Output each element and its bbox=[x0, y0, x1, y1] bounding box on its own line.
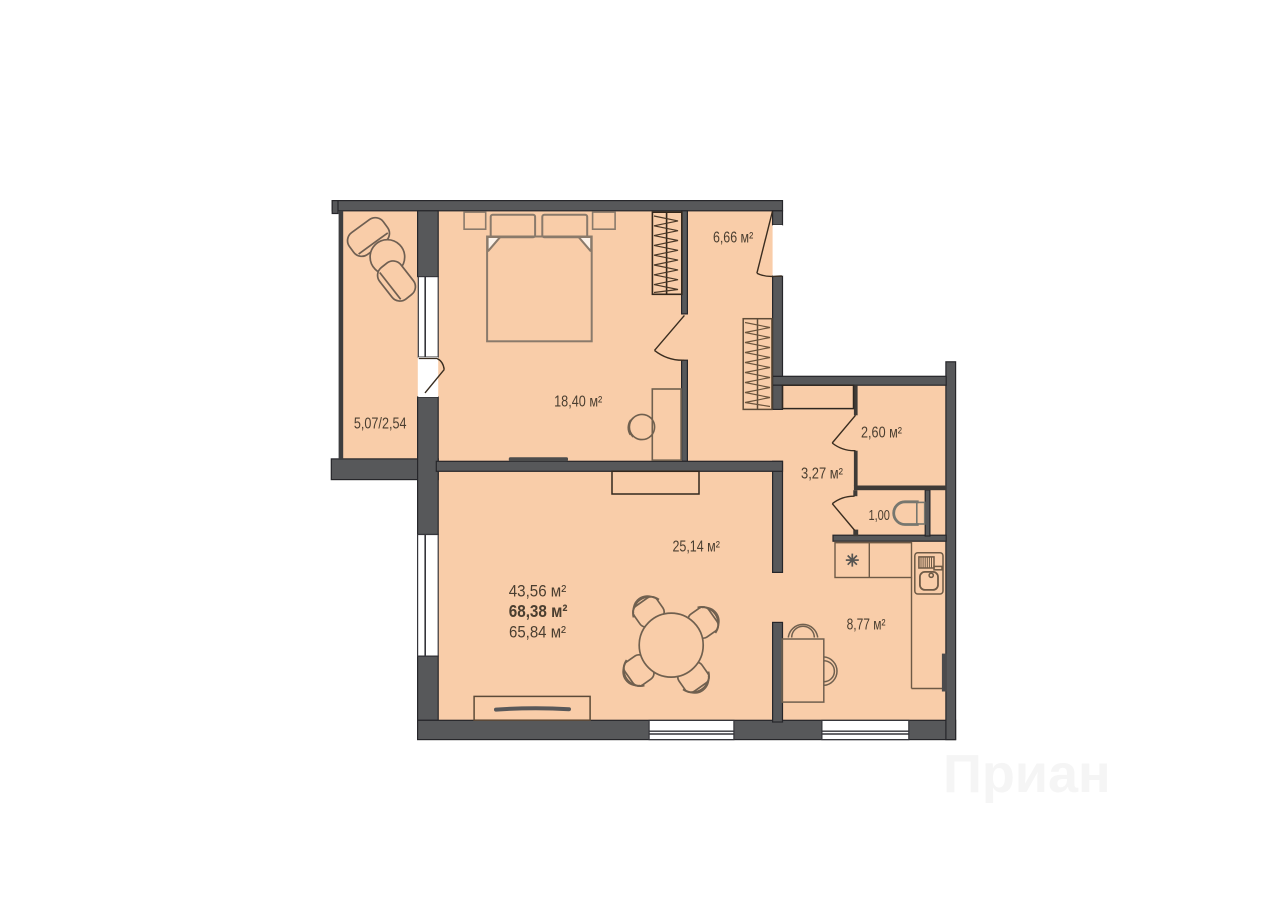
svg-text:43,56 м²: 43,56 м² bbox=[509, 582, 567, 600]
svg-text:68,38 м²: 68,38 м² bbox=[509, 601, 568, 621]
svg-text:2,60 м²: 2,60 м² bbox=[861, 425, 902, 442]
svg-text:3,27 м²: 3,27 м² bbox=[801, 466, 843, 483]
svg-text:5,07/2,54: 5,07/2,54 bbox=[354, 416, 407, 433]
svg-text:65,84 м²: 65,84 м² bbox=[509, 623, 566, 641]
svg-text:18,40 м²: 18,40 м² bbox=[554, 394, 602, 411]
svg-text:6,66 м²: 6,66 м² bbox=[713, 230, 753, 247]
svg-text:1,00: 1,00 bbox=[868, 508, 890, 524]
svg-text:Приан: Приан bbox=[943, 744, 1111, 804]
svg-text:8,77 м²: 8,77 м² bbox=[847, 617, 886, 634]
svg-text:25,14 м²: 25,14 м² bbox=[672, 539, 720, 556]
